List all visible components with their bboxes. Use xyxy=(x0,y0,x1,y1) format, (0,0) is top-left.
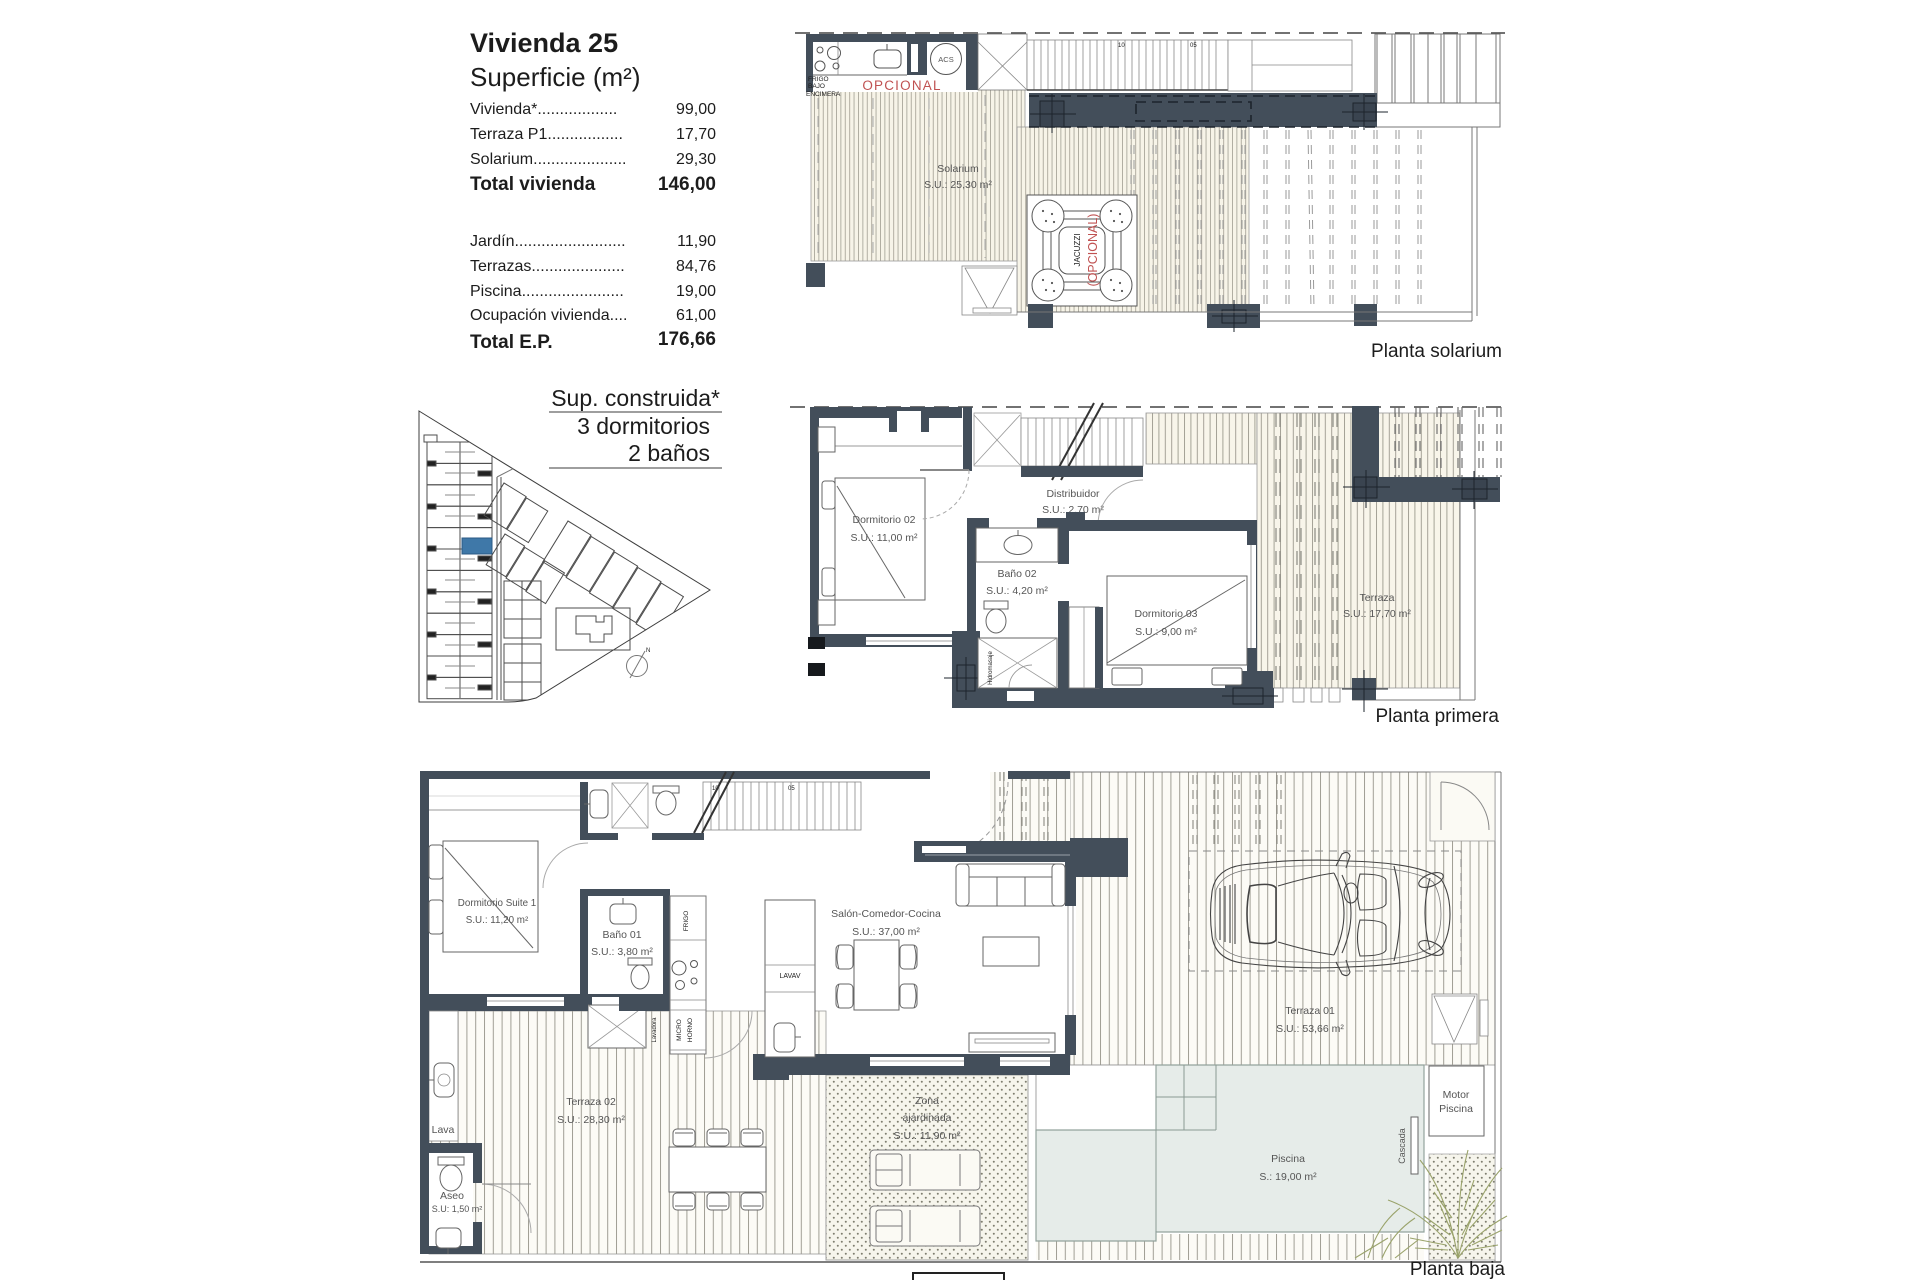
svg-text:29,30: 29,30 xyxy=(676,151,716,168)
svg-text:Terrazas.....................: Terrazas..................... xyxy=(470,258,625,275)
svg-text:S.U.: 11,20 m²: S.U.: 11,20 m² xyxy=(466,915,529,926)
svg-text:HORNO: HORNO xyxy=(687,1018,694,1042)
svg-text:S.U.: 17,70 m²: S.U.: 17,70 m² xyxy=(1343,608,1411,620)
svg-text:Lava: Lava xyxy=(432,1124,455,1136)
svg-text:Terraza P1.................: Terraza P1................. xyxy=(470,126,623,143)
svg-text:ajardinada: ajardinada xyxy=(902,1112,951,1124)
svg-text:61,00: 61,00 xyxy=(676,307,716,324)
svg-text:Baño 02: Baño 02 xyxy=(997,568,1036,580)
svg-text:S.U: 1,50 m²: S.U: 1,50 m² xyxy=(432,1204,483,1214)
svg-text:S.U.: 11,90 m²: S.U.: 11,90 m² xyxy=(894,1130,961,1142)
svg-text:Solarium: Solarium xyxy=(937,163,979,175)
svg-text:S.U.: 53,66 m²: S.U.: 53,66 m² xyxy=(1276,1023,1344,1035)
svg-text:S.: 19,00 m²: S.: 19,00 m² xyxy=(1259,1171,1317,1183)
svg-text:Zona: Zona xyxy=(915,1095,939,1107)
svg-text:Vivienda*..................: Vivienda*.................. xyxy=(470,101,617,118)
svg-text:05: 05 xyxy=(1190,43,1197,49)
svg-text:MICRO: MICRO xyxy=(676,1019,683,1041)
svg-text:Terraza 02: Terraza 02 xyxy=(566,1096,616,1108)
svg-text:S.U.: 25,30 m²: S.U.: 25,30 m² xyxy=(924,179,992,191)
svg-text:Planta baja: Planta baja xyxy=(1410,1259,1506,1280)
svg-text:Piscina: Piscina xyxy=(1439,1103,1473,1115)
svg-text:Terraza: Terraza xyxy=(1359,592,1394,604)
svg-text:Ocupación vivienda....: Ocupación vivienda.... xyxy=(470,307,627,324)
svg-text:Lavadora: Lavadora xyxy=(652,1017,658,1043)
svg-text:S.U.: 37,00 m²: S.U.: 37,00 m² xyxy=(852,926,920,938)
svg-text:(OPCIONAL): (OPCIONAL) xyxy=(1086,214,1100,287)
svg-text:19,00: 19,00 xyxy=(676,283,716,300)
svg-text:Dormitorio 02: Dormitorio 02 xyxy=(852,514,915,526)
svg-text:Baño 01: Baño 01 xyxy=(602,929,641,941)
svg-text:Jardín........................: Jardín......................... xyxy=(470,233,626,250)
svg-text:S.U.: 28,30 m²: S.U.: 28,30 m² xyxy=(557,1114,625,1126)
svg-text:Hidromasaje: Hidromasaje xyxy=(988,651,994,685)
svg-text:Total E.P.: Total E.P. xyxy=(470,332,553,353)
svg-text:176,66: 176,66 xyxy=(658,329,716,350)
svg-text:FRIGO: FRIGO xyxy=(683,911,690,932)
svg-text:17,70: 17,70 xyxy=(676,126,716,143)
svg-text:Motor: Motor xyxy=(1443,1089,1470,1101)
svg-text:Piscina: Piscina xyxy=(1271,1153,1305,1165)
svg-text:Cascada: Cascada xyxy=(1397,1128,1407,1164)
svg-text:S.U.: 11,00 m²: S.U.: 11,00 m² xyxy=(851,532,918,544)
svg-text:Planta primera: Planta primera xyxy=(1375,706,1499,727)
svg-text:ACS: ACS xyxy=(938,55,953,64)
svg-text:99,00: 99,00 xyxy=(676,101,716,118)
svg-text:Piscina.......................: Piscina....................... xyxy=(470,283,624,300)
svg-text:2 baños: 2 baños xyxy=(628,440,710,466)
svg-text:3 dormitorios: 3 dormitorios xyxy=(577,413,710,439)
svg-text:05: 05 xyxy=(788,786,795,792)
svg-text:BAJO: BAJO xyxy=(808,83,825,90)
svg-text:ENCIMERA: ENCIMERA xyxy=(806,91,841,98)
svg-text:11,90: 11,90 xyxy=(677,233,716,250)
svg-text:N: N xyxy=(646,648,650,654)
svg-text:S.U.: 4,20 m²: S.U.: 4,20 m² xyxy=(986,585,1048,597)
svg-text:Dormitorio 03: Dormitorio 03 xyxy=(1134,608,1197,620)
svg-text:Solarium.....................: Solarium..................... xyxy=(470,151,626,168)
svg-text:84,76: 84,76 xyxy=(676,258,716,275)
svg-text:Sup. construida*: Sup. construida* xyxy=(551,385,720,411)
svg-text:Terraza 01: Terraza 01 xyxy=(1285,1005,1335,1017)
svg-text:S.U.: 3,80 m²: S.U.: 3,80 m² xyxy=(591,946,653,958)
svg-text:S.U.: 9,00 m²: S.U.: 9,00 m² xyxy=(1135,626,1197,638)
svg-text:Vivienda 25: Vivienda 25 xyxy=(470,28,618,58)
svg-text:146,00: 146,00 xyxy=(658,174,716,195)
svg-text:LAVAV: LAVAV xyxy=(779,973,800,980)
svg-text:Superficie (m²): Superficie (m²) xyxy=(470,62,640,92)
svg-text:FRIGO: FRIGO xyxy=(808,76,829,83)
svg-text:JACUZZI: JACUZZI xyxy=(1073,234,1082,267)
svg-text:Salón-Comedor-Cocina: Salón-Comedor-Cocina xyxy=(831,908,941,920)
svg-text:Distribuidor: Distribuidor xyxy=(1046,488,1100,500)
svg-text:Aseo: Aseo xyxy=(440,1190,464,1202)
svg-text:Total vivienda: Total vivienda xyxy=(470,174,596,195)
svg-text:Planta solarium: Planta solarium xyxy=(1371,341,1502,362)
svg-text:Dormitorio Suite 1: Dormitorio Suite 1 xyxy=(458,898,536,909)
svg-text:OPCIONAL: OPCIONAL xyxy=(862,78,941,93)
svg-text:10: 10 xyxy=(1118,43,1125,49)
